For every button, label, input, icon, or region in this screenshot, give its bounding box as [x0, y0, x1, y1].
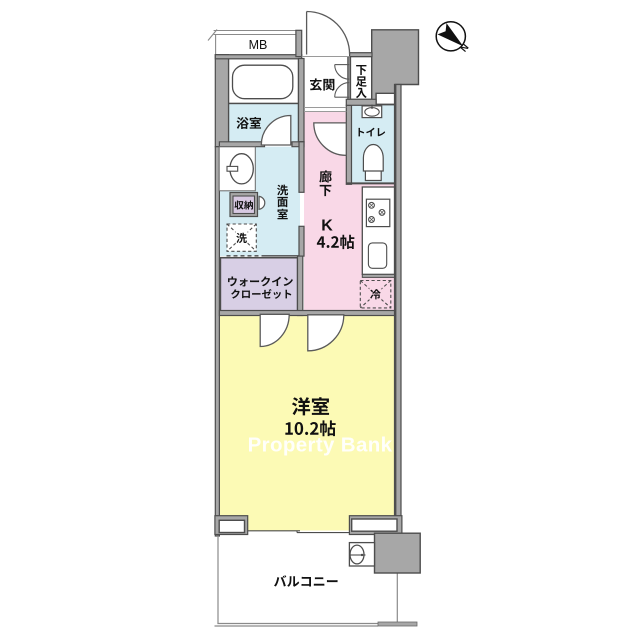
svg-text:Property Bank: Property Bank [248, 433, 393, 456]
svg-text:K: K [321, 218, 333, 235]
svg-text:MB: MB [249, 38, 268, 52]
